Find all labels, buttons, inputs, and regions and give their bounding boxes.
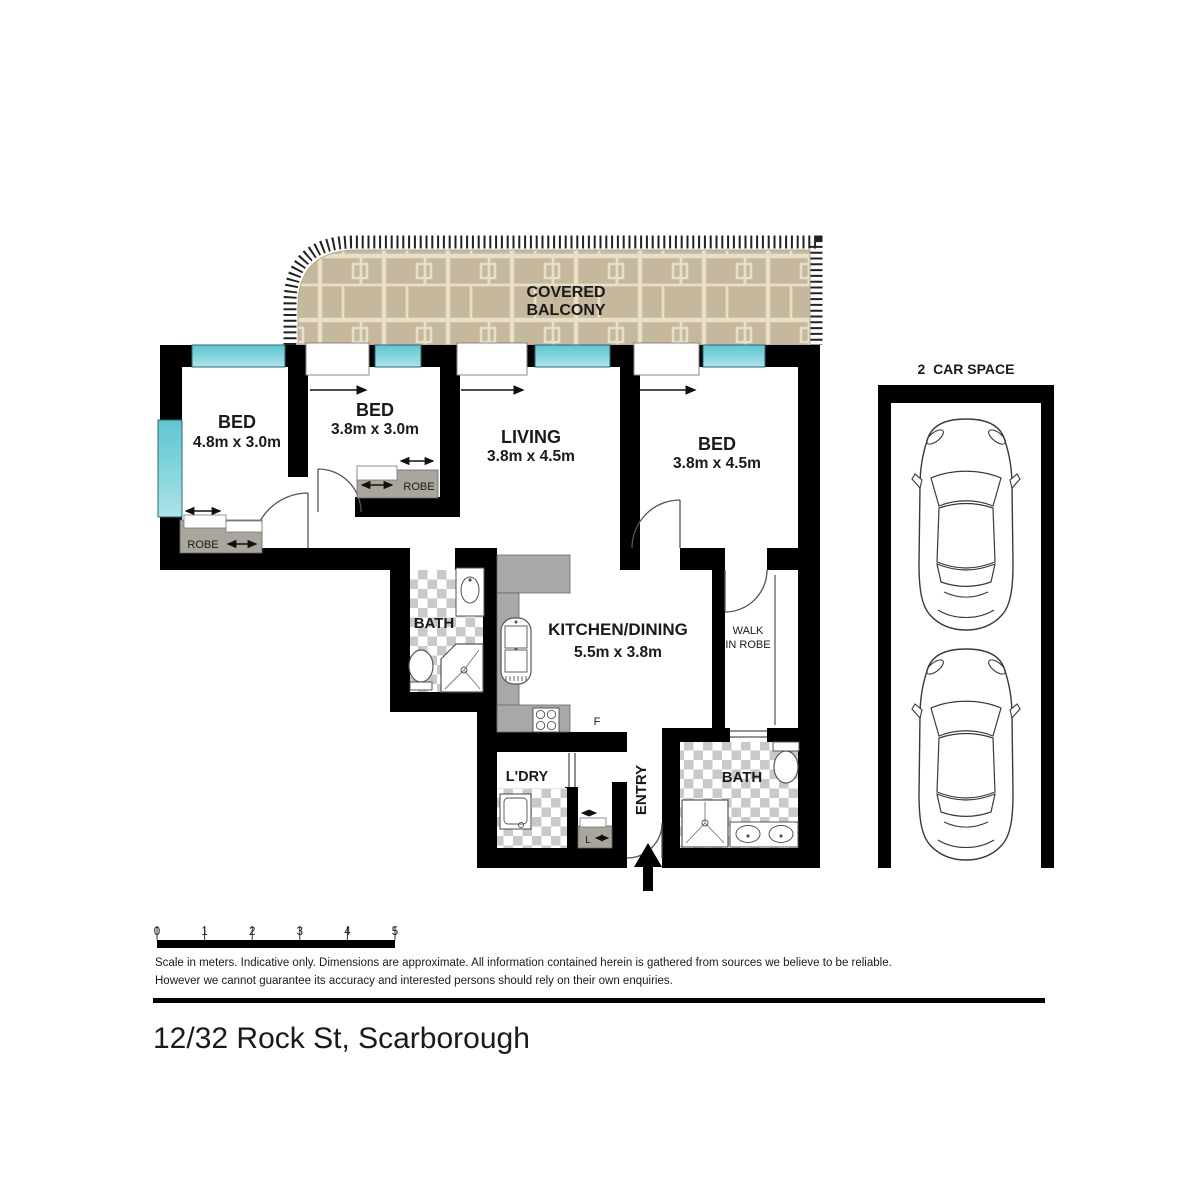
kitchen-dims: 5.5m x 3.8m xyxy=(574,644,662,661)
basin-icon xyxy=(736,826,760,843)
car-top-view xyxy=(912,419,1020,630)
laundry: L'DRY xyxy=(497,769,567,848)
kitchen-label: KITCHEN/DINING xyxy=(548,620,688,639)
living-label: LIVING xyxy=(501,427,561,447)
scale-bar-rule xyxy=(157,940,395,948)
page-title: 12/32 Rock St, Scarborough xyxy=(153,1022,530,1055)
disclaimer-line1: Scale in meters. Indicative only. Dimens… xyxy=(155,957,892,969)
wall-segment xyxy=(390,692,497,712)
footer: Scale in meters. Indicative only. Dimens… xyxy=(153,957,1045,1055)
scale-tick-label: 2 xyxy=(249,926,255,938)
bed1-dims: 4.8m x 3.0m xyxy=(193,434,281,451)
basin-icon xyxy=(769,826,793,843)
wall-segment xyxy=(455,548,497,570)
kitchen-counter xyxy=(497,555,570,593)
disclaimer-line2: However we cannot guarantee its accuracy… xyxy=(155,975,673,987)
entry-label: ENTRY xyxy=(633,765,650,815)
robe-bed1: ROBE xyxy=(180,511,262,553)
wall-segment xyxy=(288,345,308,477)
bed1-label: BED xyxy=(218,412,256,432)
bed2-label: BED xyxy=(356,400,394,420)
door-arc xyxy=(318,469,361,512)
scale-bar: 0 1 2 3 4 5 xyxy=(154,926,398,948)
toilet-base xyxy=(410,682,432,690)
wall-segment xyxy=(1041,385,1054,868)
robe-label: ROBE xyxy=(187,539,218,551)
tap-icon xyxy=(746,834,749,837)
kitchen: F KITCHEN/DINING 5.5m x 3.8m xyxy=(497,555,688,732)
toilet-icon xyxy=(409,650,433,682)
scale-tick-label: 3 xyxy=(297,926,303,938)
window xyxy=(375,345,421,367)
walk-in-robe: WALK IN ROBE xyxy=(725,575,775,725)
car-space: 2 CAR SPACE xyxy=(878,361,1054,868)
wall-segment xyxy=(878,385,1054,403)
toilet-cistern xyxy=(773,742,799,751)
tap-icon xyxy=(468,578,471,581)
tap-icon xyxy=(779,834,782,837)
wall-segment xyxy=(477,848,627,868)
wall-segment xyxy=(878,385,891,868)
sink-bowl xyxy=(505,626,527,648)
wall-segment xyxy=(767,548,798,570)
bed3-label: BED xyxy=(698,434,736,454)
entry-arrow-icon xyxy=(634,843,662,891)
scale-tick-label: 4 xyxy=(344,926,351,938)
bathroom-2: BATH xyxy=(680,742,799,848)
laundry-door xyxy=(569,753,575,787)
room-labels: BED 4.8m x 3.0m BED 3.8m x 3.0m LIVING 3… xyxy=(193,400,761,472)
scale-tick-label: 1 xyxy=(201,926,207,938)
window xyxy=(192,345,285,367)
wall-segment xyxy=(620,345,640,570)
door-arc xyxy=(725,570,767,612)
wall-segment xyxy=(662,730,680,868)
linen-cupboard: L xyxy=(578,813,612,848)
sink-bowl xyxy=(505,650,527,672)
tub-bowl xyxy=(504,798,527,824)
car-space-title: 2 CAR SPACE xyxy=(918,361,1015,377)
covered-balcony: COVERED BALCONY xyxy=(290,242,816,345)
tap-icon xyxy=(515,648,518,651)
linen-carcass xyxy=(578,826,612,848)
bathroom-1: BATH xyxy=(409,568,484,692)
footer-divider xyxy=(153,998,1045,1003)
scale-tick-label: 5 xyxy=(392,926,398,938)
wall-segment xyxy=(483,570,497,712)
robe-bed2: ROBE xyxy=(357,461,438,498)
wall-segment xyxy=(390,570,410,710)
floorplan-page: COVERED BALCONY xyxy=(0,0,1200,1200)
linen-door-panel xyxy=(580,818,606,827)
sliding-doors xyxy=(306,343,699,375)
living-dims: 3.8m x 4.5m xyxy=(487,448,575,465)
cavity-slider-door xyxy=(730,731,767,737)
balcony-label-line2: BALCONY xyxy=(526,302,605,319)
fridge-marker: F xyxy=(594,716,601,728)
wall-segment xyxy=(662,848,820,868)
window xyxy=(535,345,610,367)
bed2-dims: 3.8m x 3.0m xyxy=(331,421,419,438)
laundry-label: L'DRY xyxy=(506,769,549,785)
wir-label-line1: WALK xyxy=(733,625,764,637)
wall-segment xyxy=(798,345,820,868)
window xyxy=(158,420,182,517)
wall-segment xyxy=(493,732,627,752)
bed3-dims: 3.8m x 4.5m xyxy=(673,455,761,472)
robe-label: ROBE xyxy=(403,481,434,493)
bath2-label: BATH xyxy=(722,769,763,786)
sliding-door xyxy=(634,343,699,375)
floorplan-drawing: COVERED BALCONY xyxy=(0,0,1200,1200)
sliding-door xyxy=(306,343,369,375)
linen-label: L xyxy=(585,835,591,846)
toilet-icon xyxy=(774,751,798,783)
scale-tick-label: 0 xyxy=(154,926,160,938)
balcony-label-line1: COVERED xyxy=(526,284,605,301)
robe-door-panel xyxy=(226,521,262,532)
wir-label-line2: IN ROBE xyxy=(725,639,770,651)
sliding-door xyxy=(457,343,527,375)
tap-icon xyxy=(515,621,518,624)
wall-segment xyxy=(767,728,798,742)
car-top-view xyxy=(912,649,1020,860)
robe-door-panel xyxy=(184,515,226,528)
wall-segment xyxy=(712,548,725,740)
entry: ENTRY xyxy=(633,765,662,891)
bath1-label: BATH xyxy=(414,615,455,632)
robe-door-panel xyxy=(357,466,397,480)
window xyxy=(703,345,765,367)
